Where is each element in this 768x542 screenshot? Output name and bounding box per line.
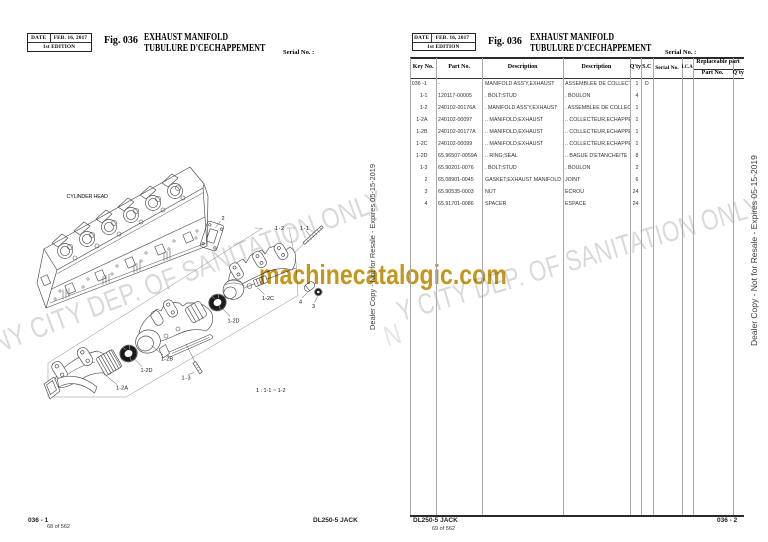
svg-text:1-2B: 1-2B (161, 357, 173, 363)
svg-text:3: 3 (312, 304, 315, 310)
svg-text:2: 2 (222, 216, 225, 222)
svg-text:1-2D: 1-2D (228, 319, 240, 325)
svg-text:1-2C: 1-2C (262, 296, 274, 302)
svg-text:1-1: 1-1 (300, 226, 309, 232)
svg-text:4: 4 (299, 299, 302, 305)
svg-text:1 : 1-1 ~ 1-2: 1 : 1-1 ~ 1-2 (256, 388, 286, 394)
svg-text:1-2A: 1-2A (116, 386, 128, 392)
svg-text:1-2D: 1-2D (141, 368, 153, 374)
svg-text:1-2: 1-2 (275, 226, 284, 232)
svg-text:CYLINDER HEAD: CYLINDER HEAD (67, 194, 109, 200)
svg-text:1-3: 1-3 (182, 376, 191, 382)
